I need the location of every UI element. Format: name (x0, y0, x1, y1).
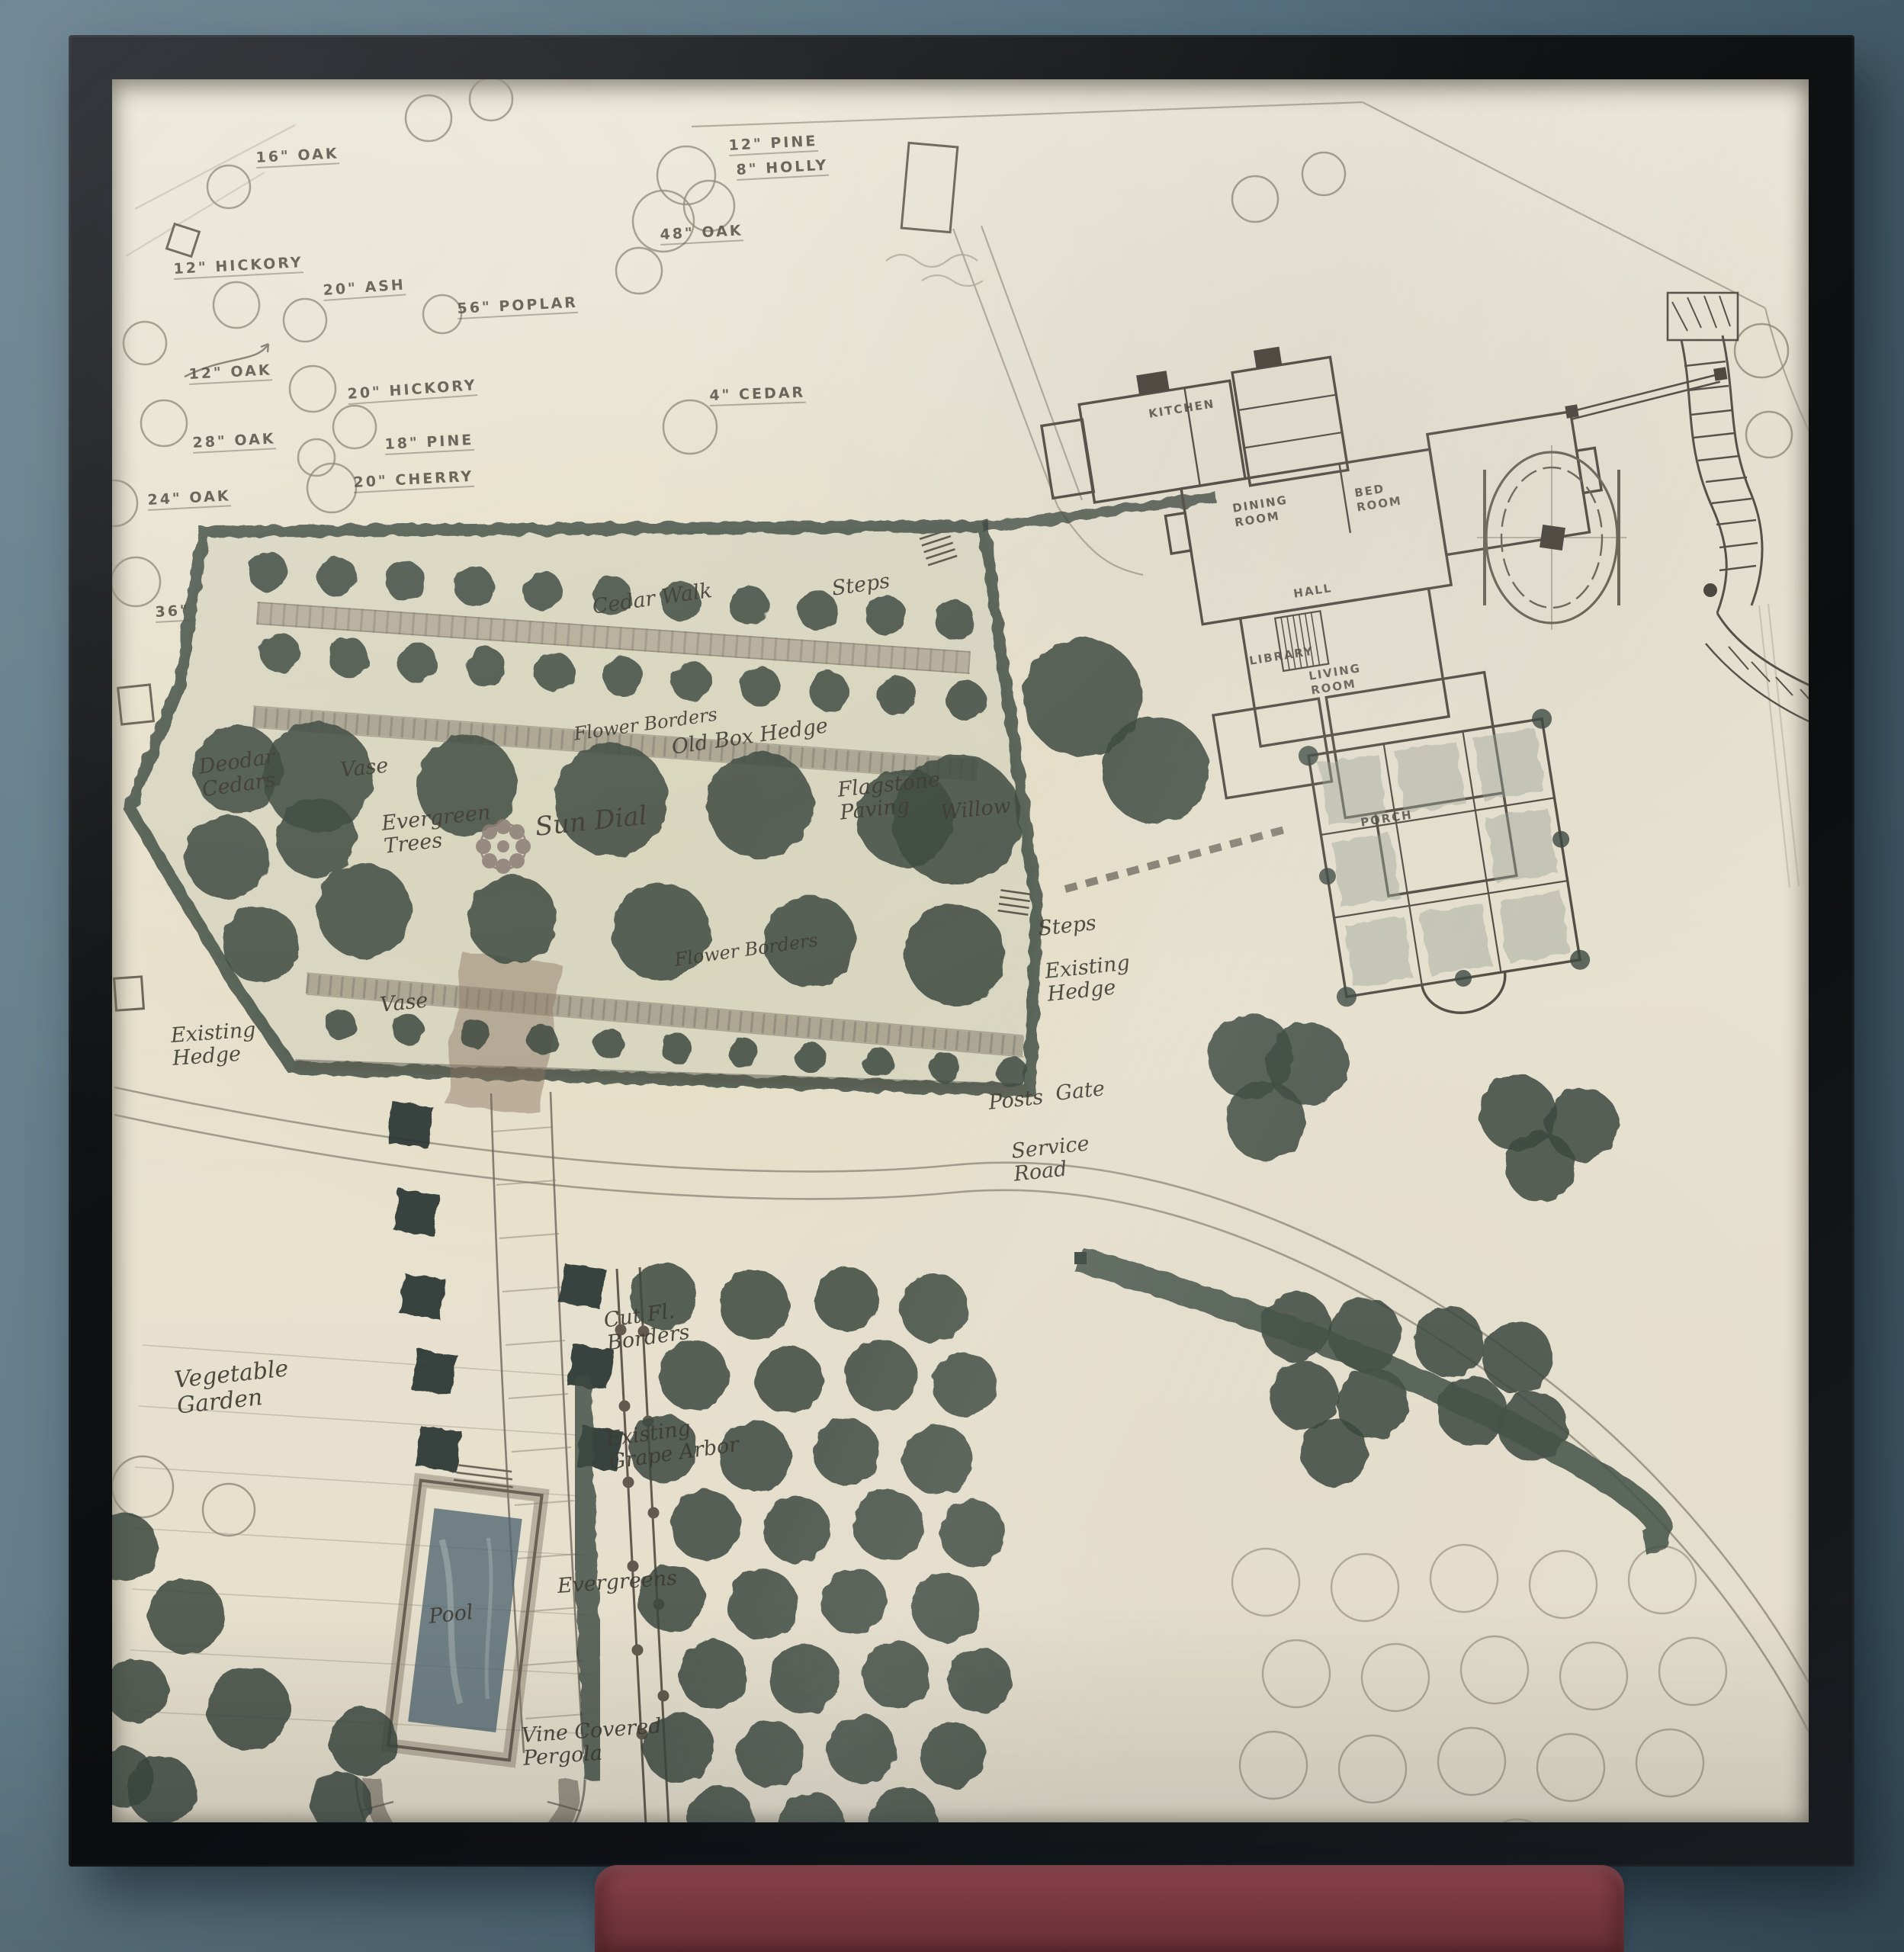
room-label-2: BED ROOM (1353, 480, 1403, 515)
tree-tag-7: 18" PINE (384, 432, 474, 455)
tree-tag-9: 24" OAK (147, 487, 231, 511)
tree-tag-8: 20" CHERRY (353, 468, 474, 493)
garden-label-0: Deodar Cedars (197, 746, 280, 802)
garden-label-2: Evergreen Trees (380, 801, 494, 859)
tree-tag-6: 28" OAK (192, 430, 276, 454)
garden-label-17: Existing Hedge (170, 1019, 258, 1071)
room-label-3: HALL (1292, 581, 1334, 602)
room-label-1: DINING ROOM (1231, 493, 1291, 530)
picture-frame: 16" OAK12" HICKORY20" ASH56" POPLAR12" O… (69, 35, 1854, 1867)
garden-label-5: Flagstone Paving (836, 769, 944, 825)
garden-label-8: Steps (830, 570, 891, 601)
tree-tag-13: 48" OAK (660, 222, 743, 246)
garden-label-15: Gate (1055, 1077, 1106, 1106)
tree-tag-12: 8" HOLLY (736, 157, 829, 181)
room-label-5: LIVING ROOM (1308, 661, 1364, 698)
room-label-6: PORCH (1360, 807, 1414, 830)
tree-tag-14: 4" CEDAR (709, 384, 806, 406)
garden-label-13: Existing Hedge (1044, 952, 1133, 1006)
garden-label-7: Cedar Walk (591, 579, 714, 619)
room-label-4: LIBRARY (1248, 644, 1315, 669)
garden-label-11: Vase (379, 989, 429, 1017)
garden-label-3: Sun Dial (534, 801, 648, 842)
tree-tag-4: 12" OAK (188, 361, 272, 385)
tree-tag-5: 20" HICKORY (347, 377, 478, 405)
garden-label-6: Willow (939, 795, 1012, 825)
garden-label-16: Service Road (1010, 1132, 1093, 1186)
garden-label-22: Pool (428, 1601, 474, 1629)
garden-plan-drawing: 16" OAK12" HICKORY20" ASH56" POPLAR12" O… (112, 79, 1809, 1822)
tree-tag-3: 56" POPLAR (457, 294, 578, 319)
room-label-0: KITCHEN (1148, 396, 1216, 421)
tree-tag-10: 36" (155, 602, 191, 623)
garden-label-1: Vase (339, 754, 390, 782)
garden-label-18: Vegetable Garden (173, 1356, 292, 1419)
garden-label-23: Vine Covered Pergola (521, 1715, 664, 1771)
red-chair-back (595, 1865, 1624, 1952)
garden-label-10: Flower Borders (673, 930, 819, 971)
garden-label-20: Existing Grape Arbor (605, 1411, 740, 1475)
tree-tag-11: 12" PINE (728, 133, 818, 156)
garden-label-21: Evergreens (557, 1567, 678, 1598)
labels-layer: 16" OAK12" HICKORY20" ASH56" POPLAR12" O… (112, 79, 1809, 1822)
photo-of-framed-garden-plan: 16" OAK12" HICKORY20" ASH56" POPLAR12" O… (0, 0, 1904, 1952)
garden-label-19: Cut Fl. Borders (602, 1299, 691, 1356)
garden-label-12: Steps (1037, 912, 1097, 941)
garden-label-14: Posts (987, 1086, 1045, 1115)
tree-tag-2: 20" ASH (323, 276, 406, 300)
tree-tag-1: 12" HICKORY (173, 254, 303, 280)
tree-tag-0: 16" OAK (255, 145, 339, 169)
